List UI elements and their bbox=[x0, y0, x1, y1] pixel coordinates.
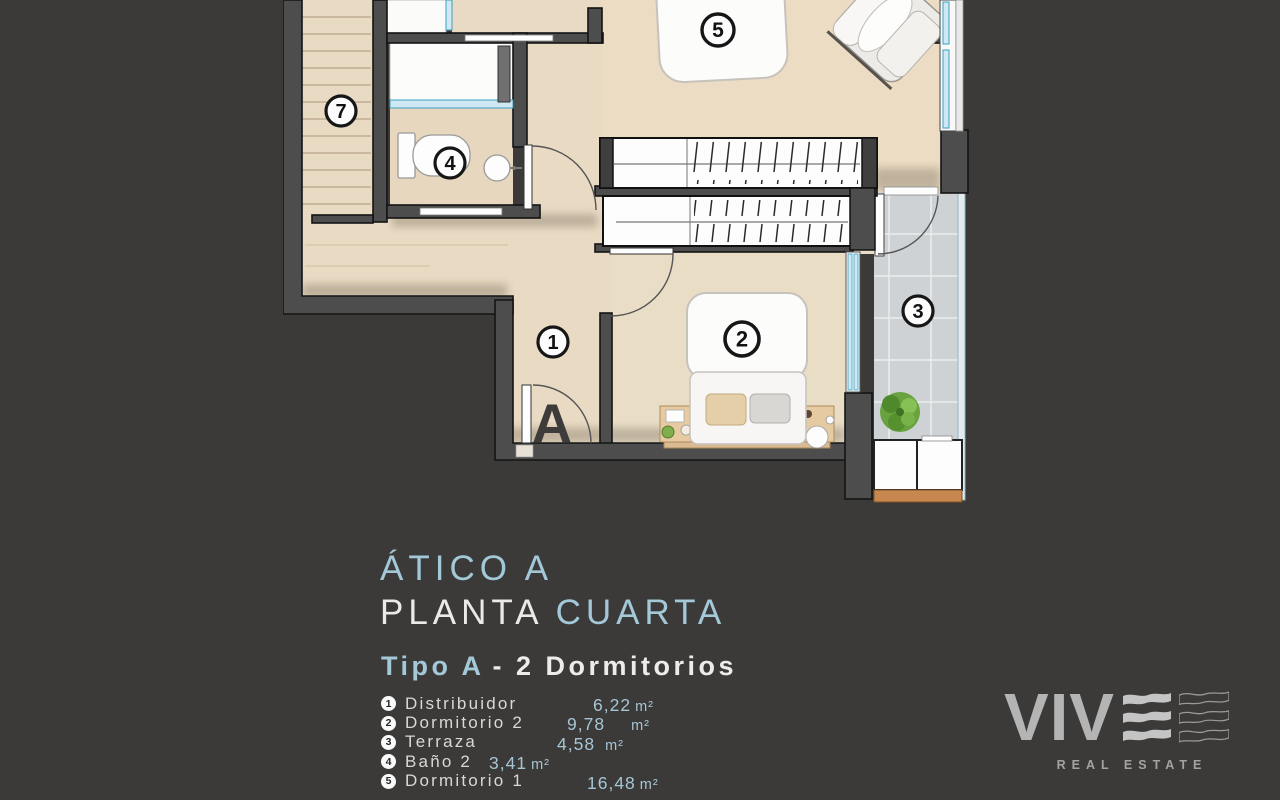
page-background: A 1 2 3 4 5 7 ÁTICO A PLANTACUARTA bbox=[0, 0, 1280, 800]
bedroom2-door-leaf bbox=[610, 248, 673, 254]
page-subtitle: PLANTACUARTA bbox=[380, 593, 726, 633]
plant bbox=[880, 392, 920, 432]
legend-room-name: Baño 2 bbox=[405, 752, 472, 772]
terrace-slider-glass bbox=[846, 252, 860, 392]
room-number-badge-2: 2 bbox=[725, 322, 759, 356]
legend-row: 2 Dormitorio 2 9,78m² bbox=[381, 713, 711, 732]
room-number-badge-7: 7 bbox=[326, 96, 356, 126]
terrace-door-glass bbox=[884, 187, 938, 195]
terrace-door-leaf bbox=[875, 194, 884, 256]
legend-room-name: Distribuidor bbox=[405, 694, 517, 714]
type-accent: Tipo A bbox=[381, 651, 485, 681]
type-rest: - 2 Dormitorios bbox=[493, 651, 738, 681]
shower-glass bbox=[390, 100, 513, 108]
terrace-cabinets bbox=[874, 436, 962, 502]
room-legend: 1 Distribuidor 6,22m² 2 Dormitorio 2 9,7… bbox=[381, 694, 711, 791]
svg-text:2: 2 bbox=[736, 327, 748, 352]
svg-text:1: 1 bbox=[547, 332, 558, 354]
shower-panel bbox=[498, 46, 510, 102]
legend-room-name: Dormitorio 1 bbox=[405, 771, 524, 791]
legend-room-name: Terraza bbox=[405, 732, 477, 752]
legend-number-badge: 4 bbox=[381, 754, 396, 769]
legend-number-badge: 5 bbox=[381, 774, 396, 789]
subtitle-accent: CUARTA bbox=[556, 593, 727, 632]
bathroom-door-leaf bbox=[524, 145, 532, 209]
page-title: ÁTICO A bbox=[380, 549, 553, 589]
window-wall bbox=[940, 0, 963, 131]
room-number-badge-5: 5 bbox=[702, 14, 734, 46]
room-number-badge-3: 3 bbox=[903, 296, 933, 326]
legend-room-area: 16,48m² bbox=[587, 773, 659, 794]
legend-number-badge: 3 bbox=[381, 735, 396, 750]
wave-e-filled-icon bbox=[1123, 692, 1171, 742]
sink bbox=[484, 155, 522, 181]
corner-pillar bbox=[845, 393, 872, 499]
unit-letter: A bbox=[532, 392, 572, 455]
svg-text:7: 7 bbox=[335, 101, 346, 123]
vive-logo: VIV REAL ESTATE bbox=[1002, 684, 1262, 772]
wave-e-outline-icon bbox=[1179, 691, 1229, 743]
logo-tagline: REAL ESTATE bbox=[1002, 758, 1262, 772]
svg-text:3: 3 bbox=[912, 301, 923, 323]
terrace bbox=[874, 187, 965, 502]
cushion-gray bbox=[750, 394, 790, 423]
room-number-badge-1: 1 bbox=[538, 327, 568, 357]
hanger-rail-lower bbox=[694, 200, 846, 242]
window-pillar bbox=[941, 130, 968, 193]
area-unit: m² bbox=[640, 777, 659, 793]
legend-room-name: Dormitorio 2 bbox=[405, 713, 524, 733]
logo-text: VIV bbox=[1004, 684, 1115, 751]
floor-plan: A 1 2 3 4 5 7 bbox=[283, 0, 973, 510]
legend-number-badge: 1 bbox=[381, 696, 396, 711]
cushion-tan bbox=[706, 394, 746, 425]
legend-number-badge: 2 bbox=[381, 716, 396, 731]
legend-row: 4 Baño 2 3,41m² bbox=[381, 752, 711, 771]
legend-row: 5 Dormitorio 1 16,48m² bbox=[381, 772, 711, 791]
room-number-badge-4: 4 bbox=[435, 148, 465, 178]
subtitle-word: PLANTA bbox=[380, 593, 544, 632]
shower-glass-upper bbox=[446, 0, 452, 30]
type-heading: Tipo A- 2 Dormitorios bbox=[381, 651, 737, 682]
stair-wall bbox=[373, 0, 387, 222]
legend-row: 3 Terraza 4,58m² bbox=[381, 733, 711, 752]
svg-text:4: 4 bbox=[444, 153, 456, 175]
hanger-rail-upper bbox=[692, 142, 858, 184]
logo-wordmark: VIV bbox=[1002, 684, 1262, 750]
legend-row: 1 Distribuidor 6,22m² bbox=[381, 694, 711, 713]
entrance-door-leaf bbox=[522, 385, 531, 443]
svg-text:5: 5 bbox=[712, 19, 724, 42]
cabinet-wood-strip bbox=[874, 490, 962, 502]
